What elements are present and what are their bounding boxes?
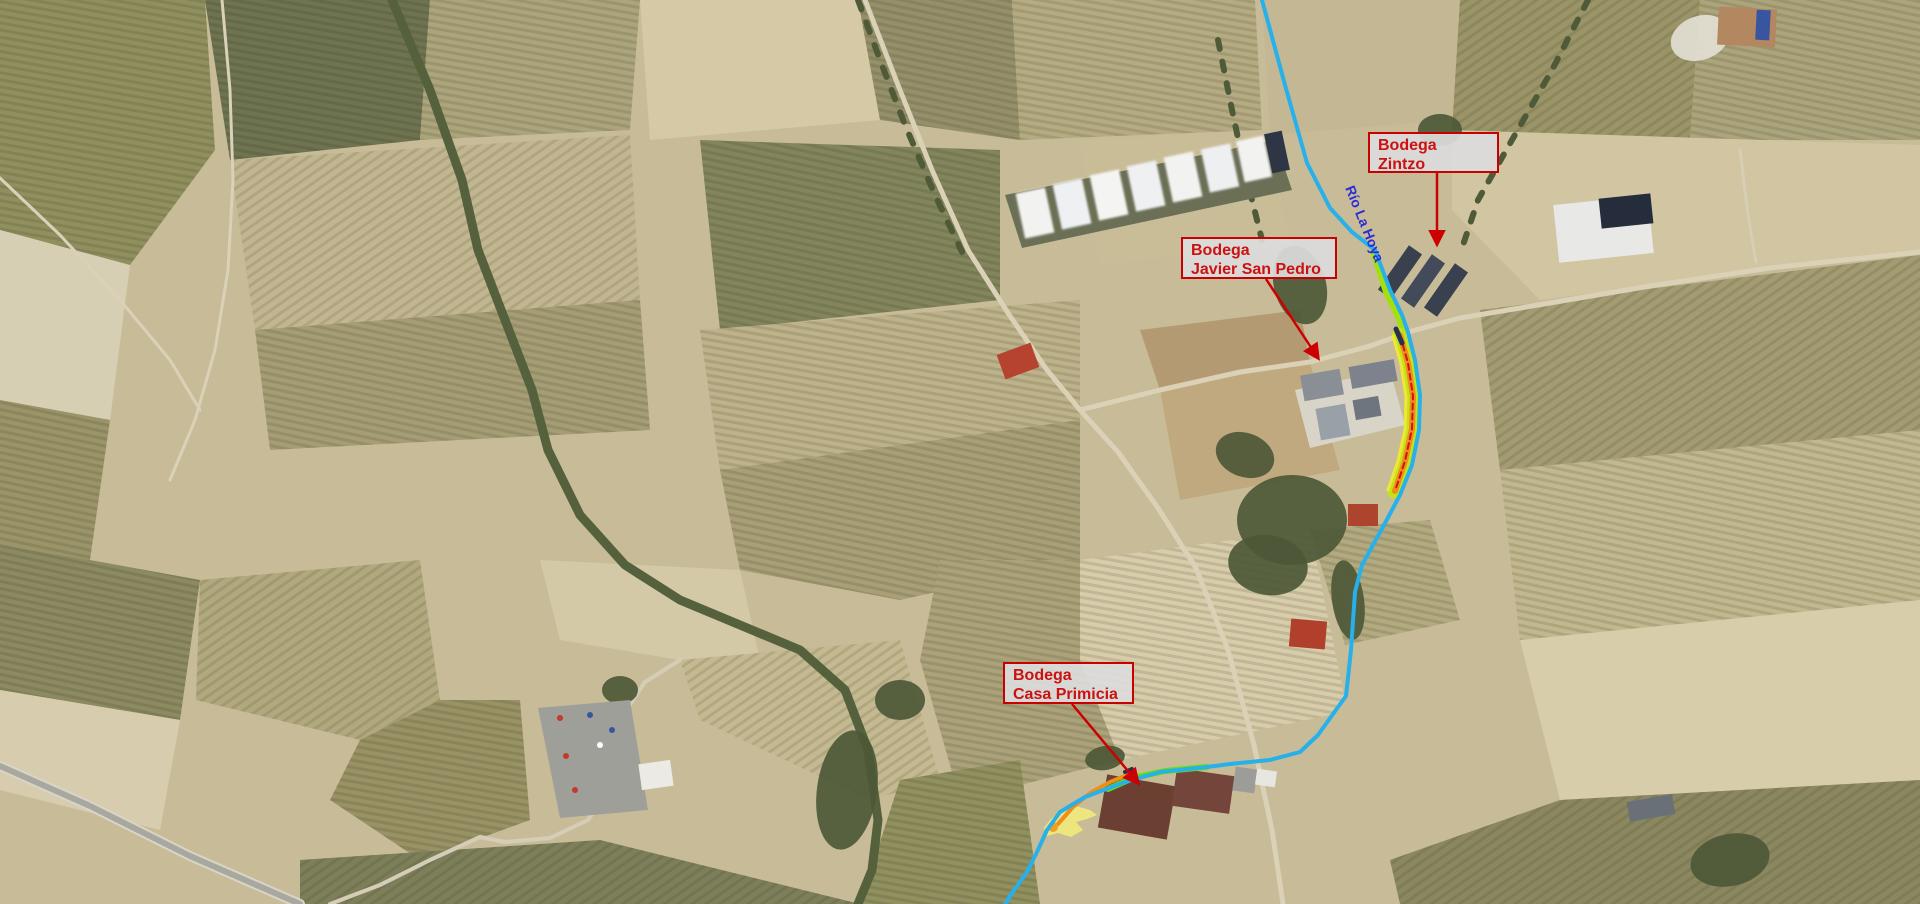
yard-item [557,715,563,721]
yard-item [609,727,615,733]
trees [1418,114,1462,146]
field-rows [205,0,430,160]
field-rows [700,140,1000,330]
bodega-jsp-building [1315,404,1350,441]
map-canvas: Río La Hoya [0,0,1920,904]
trees [602,676,638,704]
bodega-primicia-building [1255,769,1277,788]
field-rows [420,0,640,140]
yard-item [563,753,569,759]
field-rows [230,135,640,330]
yard-item [587,712,593,718]
warehouse-dark [1599,193,1654,228]
bodega-primicia-building [1172,768,1235,814]
trees [875,680,925,720]
yard-item [572,787,578,793]
red-roof-house [1348,504,1378,526]
field [640,0,880,140]
yard-item [597,742,603,748]
red-roof-house [1289,618,1327,649]
aerial-map[interactable]: Río La Hoya BodegaZintzoBodegaJavier San… [0,0,1920,904]
bodega-primicia-building [1232,767,1257,794]
farm-building-blue [1755,10,1771,41]
building [638,760,673,790]
